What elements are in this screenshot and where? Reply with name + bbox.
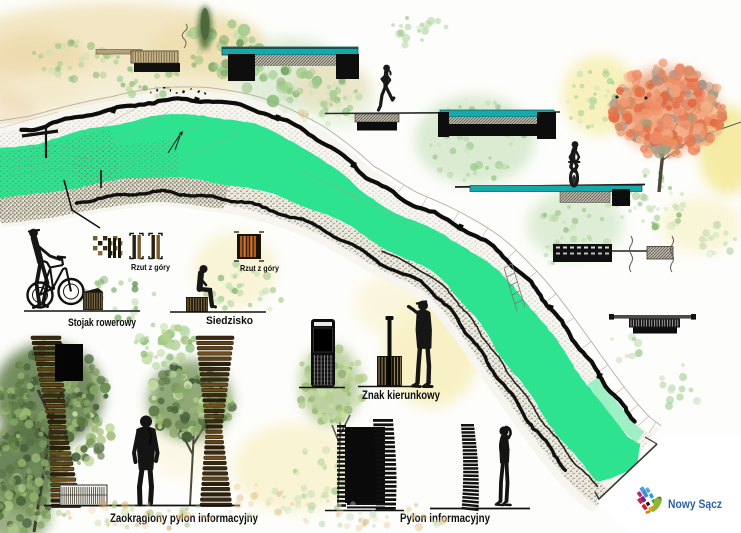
svg-text:Rzut z góry: Rzut z góry — [131, 262, 170, 272]
svg-text:Nowy Sącz: Nowy Sącz — [668, 499, 722, 511]
svg-text:Siedzisko: Siedzisko — [206, 315, 253, 327]
svg-text:Rzut z góry: Rzut z góry — [240, 263, 279, 273]
svg-text:Znak kierunkowy: Znak kierunkowy — [362, 390, 441, 402]
svg-text:Stojak rowerowy: Stojak rowerowy — [68, 317, 137, 329]
